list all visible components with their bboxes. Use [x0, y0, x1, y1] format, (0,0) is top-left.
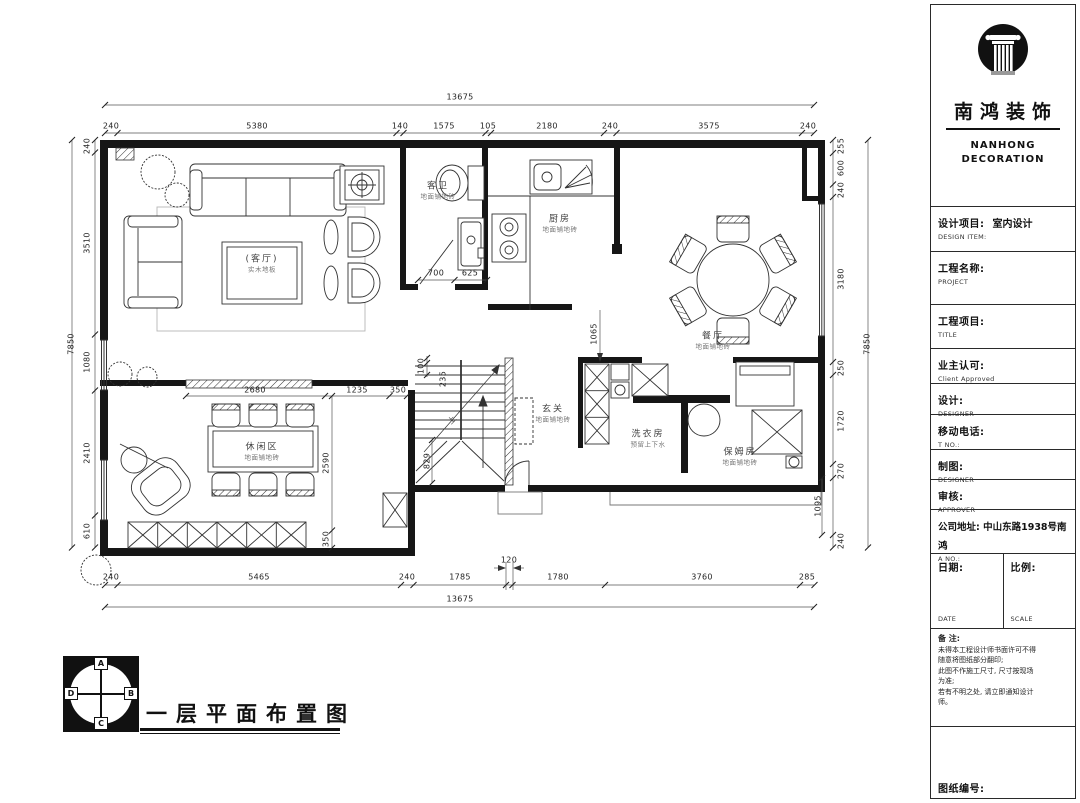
dim-label: 105 — [480, 122, 496, 131]
maid-bed — [736, 362, 794, 406]
tall-cabinet — [585, 364, 609, 444]
notes-section: 备 注: 未得本工程设计师书面许可不得 随意将图纸部分翻印; 此图不作施工尺寸,… — [931, 628, 1075, 726]
dim-label: 829 — [423, 453, 432, 469]
company-logo-icon — [975, 23, 1031, 79]
dim-label: 250 — [837, 360, 846, 376]
dining-table — [697, 244, 769, 316]
dim-label: 3760 — [691, 573, 713, 582]
dim-label: 240 — [602, 122, 618, 131]
storage-box — [383, 493, 407, 527]
dim-label: 1095 — [814, 495, 823, 517]
side-table — [324, 266, 338, 300]
dim-label: 7850 — [863, 333, 872, 355]
dim-label: 7850 — [67, 333, 76, 355]
field-date: 日期: DATE — [931, 554, 1004, 628]
side-table — [324, 220, 338, 254]
dim-label: 100 — [417, 358, 426, 374]
room-label-bath: 客卫 地面铺地砖 — [421, 181, 456, 202]
compass-a: A — [94, 657, 108, 670]
dim-label: 2180 — [536, 122, 558, 131]
field-project-title: 工程项目: TITLE — [931, 304, 1075, 348]
dim-label: 2590 — [322, 452, 331, 474]
dim-label: 240 — [837, 533, 846, 549]
field-sheet-number: 图纸编号: — [931, 726, 1075, 800]
maid-cabinet — [752, 410, 802, 454]
dim-label: 240 — [837, 182, 846, 198]
floor-plan-svg — [0, 0, 930, 803]
drawing-title-underline-thin — [140, 733, 340, 734]
cabinet-box — [632, 364, 668, 396]
room-label-living: (客厅) 实木地板 — [245, 254, 278, 275]
field-company-address: 公司地址: 中山东路1938号南鸿 A NO.: — [931, 509, 1075, 553]
design-item-value: 室内设计 — [993, 219, 1033, 230]
dim-label: 1235 — [346, 386, 368, 395]
dim-label: 2680 — [244, 386, 266, 395]
company-name: 南鸿装饰 — [946, 95, 1060, 130]
dim-label: 240 — [399, 573, 415, 582]
dim-label: 140 — [392, 122, 408, 131]
field-designer: 设计: DESIGNER — [931, 383, 1075, 414]
room-label-maid: 保姆房 地面铺地砖 — [723, 447, 758, 468]
company-name-en: NANHONG DECORATION — [961, 139, 1044, 166]
shoe-bench — [515, 398, 533, 444]
field-design-item: 设计项目:室内设计 DESIGN ITEM: — [931, 206, 1075, 251]
room-label-foyer: 玄关 地面铺地砖 — [536, 404, 571, 425]
compass-b: B — [124, 687, 138, 700]
dim-label: 240 — [103, 122, 119, 131]
dim-label: 350 — [390, 386, 406, 395]
dim-label: 5380 — [246, 122, 268, 131]
dim-label: 1720 — [837, 410, 846, 432]
low-cabinet-row — [128, 522, 306, 548]
orientation-compass: A D B C — [63, 656, 139, 732]
sofa-three-seat — [190, 164, 346, 216]
room-label-dining: 餐厅 地面铺地砖 — [696, 331, 731, 352]
dim-label: 1575 — [433, 122, 455, 131]
title-block: 南鸿装饰 NANHONG DECORATION 设计项目:室内设计 DESIGN… — [930, 4, 1076, 799]
dim-label: 5465 — [248, 573, 270, 582]
kitchen-sink — [530, 160, 592, 194]
drawing-title-underline — [140, 728, 340, 731]
armchair — [348, 217, 380, 257]
dim-label: 1785 — [449, 573, 471, 582]
dim-label: 3510 — [83, 232, 92, 254]
dim-label: 270 — [837, 463, 846, 479]
dim-label: 285 — [799, 573, 815, 582]
compass-c: C — [94, 717, 108, 730]
dim-label: 13675 — [447, 93, 474, 102]
field-scale: 比例: SCALE — [1004, 554, 1076, 628]
dim-label: 1780 — [547, 573, 569, 582]
dim-label: 1080 — [83, 351, 92, 373]
field-mobile: 移动电话: T NO.: — [931, 414, 1075, 449]
room-label-lounge: 休闲区 地面铺地砖 — [245, 442, 280, 463]
kitchen-stove — [492, 214, 526, 262]
entry-step — [498, 492, 542, 514]
dim-label: 350 — [322, 531, 331, 547]
field-project-name: 工程名称: PROJECT — [931, 251, 1075, 304]
dim-label: 240 — [800, 122, 816, 131]
bath-vanity — [458, 218, 484, 270]
small-round-table — [688, 404, 720, 436]
terrace-edge — [610, 492, 821, 505]
field-date-scale: 日期: DATE 比例: SCALE — [931, 553, 1075, 628]
field-client-approved: 业主认可: Client Approved — [931, 348, 1075, 383]
washer — [611, 364, 629, 398]
armchair — [348, 263, 380, 303]
sofa-two-seat — [124, 216, 182, 308]
dim-label: 625 — [462, 269, 478, 278]
room-label-laundry: 洗衣房 预留上下水 — [631, 429, 666, 450]
dim-label: 2410 — [83, 442, 92, 464]
dim-label: 700 — [428, 269, 444, 278]
room-label-kitchen: 厨房 地面铺地砖 — [543, 214, 578, 235]
field-draftsman: 制图: DESIGNER — [931, 449, 1075, 479]
corner-sink — [786, 456, 802, 468]
dim-label: 120 — [501, 556, 517, 565]
fireplace-stove — [340, 166, 384, 204]
dim-label: 3180 — [837, 268, 846, 290]
dim-label: 240 — [83, 138, 92, 154]
dim-label: 1065 — [590, 323, 599, 345]
dim-label: 240 — [103, 573, 119, 582]
company-logo-section: 南鸿装饰 NANHONG DECORATION — [931, 5, 1075, 206]
compass-d: D — [64, 687, 78, 700]
field-reviewer: 审核: APPROVER — [931, 479, 1075, 509]
dim-label: 13675 — [447, 595, 474, 604]
dim-label: 610 — [83, 523, 92, 539]
drawing-title: 一层平面布置图 — [146, 698, 356, 728]
dim-label: 255 — [837, 138, 846, 154]
dim-label: 235 — [439, 371, 448, 387]
dim-label: 600 — [837, 160, 846, 176]
dim-label: 3575 — [698, 122, 720, 131]
lounge-armchair — [120, 444, 196, 521]
